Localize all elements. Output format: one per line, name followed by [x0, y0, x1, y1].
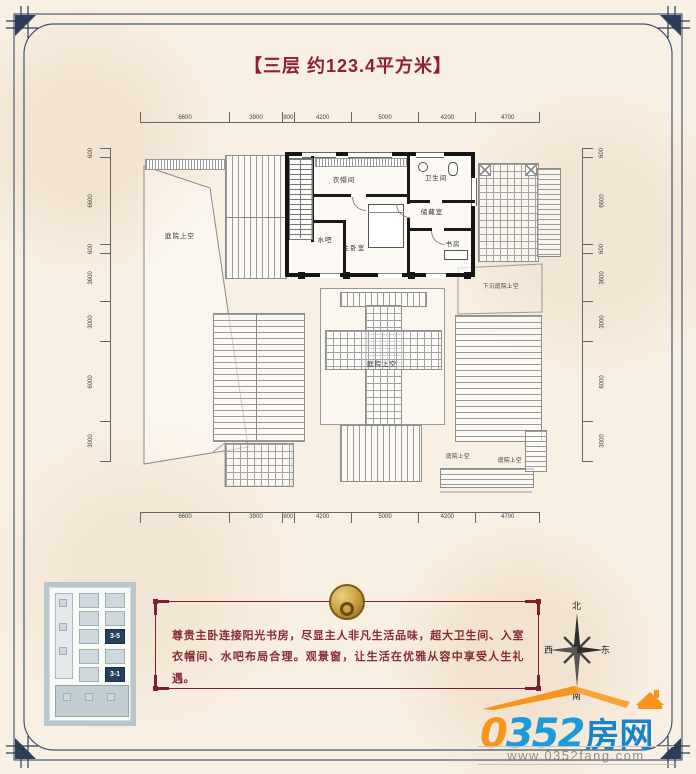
- dim-seg: 800: [282, 513, 294, 523]
- dim-value: 4200: [295, 514, 351, 520]
- dim-seg: 6600: [140, 112, 229, 122]
- description-box: 尊贵主卧连接阳光书房，尽显主人非凡生活品味，超大卫生间、入室衣帽间、水吧布局合理…: [155, 601, 539, 689]
- roof-bottom-center: [340, 425, 422, 482]
- desc-corner-ornament: [154, 675, 169, 690]
- wall-segment: [366, 194, 410, 197]
- dim-value: 800: [283, 115, 294, 121]
- dim-value: 6600: [141, 115, 229, 121]
- terrace-corner-mark: [525, 164, 537, 176]
- dim-value: 4200: [419, 514, 475, 520]
- site-logo: 0352房网 www.0352fang.com: [478, 684, 686, 764]
- wall-segment: [407, 218, 410, 277]
- stair-rail: [300, 158, 301, 238]
- dim-value: 4700: [476, 514, 539, 520]
- keyplan-unit: [79, 593, 99, 608]
- roof-lower-left: [213, 313, 305, 442]
- dim-value: 4200: [419, 115, 475, 121]
- dim-value: 600: [88, 244, 94, 254]
- roof-bottom-left-grid: [225, 443, 294, 487]
- roof-ridge-line: [225, 217, 285, 218]
- dim-seg: 600: [100, 148, 110, 157]
- window: [416, 152, 444, 158]
- wall-segment: [410, 228, 432, 231]
- dim-value: 3000: [88, 315, 94, 328]
- dim-value: 5000: [352, 115, 419, 121]
- dim-seg: 6600: [140, 513, 229, 523]
- keyplan-lower-block: [55, 685, 129, 717]
- desc-corner-ornament: [154, 600, 169, 615]
- compass-west-label: 西: [544, 645, 553, 655]
- dim-seg: 3900: [229, 112, 282, 122]
- room-label-study: 书房: [440, 238, 466, 248]
- dim-seg: 4200: [418, 112, 475, 122]
- keyplan-unit: [105, 593, 125, 608]
- steps-right-column: [525, 430, 547, 472]
- wall-segment: [311, 194, 351, 197]
- balcony-door-opening: [320, 273, 340, 278]
- keyplan-unit: [79, 649, 99, 664]
- dim-seg: 6000: [100, 341, 110, 420]
- courtyard-label: 庭院上空: [436, 452, 480, 460]
- dim-value: 3600: [599, 271, 605, 284]
- dim-value: 3000: [599, 315, 605, 328]
- dim-seg: 3600: [100, 253, 110, 301]
- dim-value: 6600: [88, 194, 94, 207]
- keyplan-unit-3-1: 3-1: [105, 667, 125, 682]
- dimension-line-top: 6600 3900 800 4200 5000 4200 4700: [140, 112, 540, 123]
- dim-seg: 3000: [583, 421, 593, 462]
- dim-seg: 4700: [475, 513, 540, 523]
- dim-value: 5000: [352, 514, 419, 520]
- page: 【三层 约123.4平方米】 6600 3900 800 4200 5000 4…: [0, 0, 696, 774]
- room-label-bath: 卫生间: [418, 172, 454, 182]
- keyplan-mark: [107, 693, 115, 701]
- courtyard-label: 庭院上空: [352, 358, 412, 368]
- keyplan-inset: 3-5 3-1: [44, 582, 136, 726]
- dim-value: 3600: [88, 271, 94, 284]
- wall-segment: [410, 200, 430, 203]
- column-post: [298, 272, 305, 279]
- balcony-door-opening: [378, 273, 402, 278]
- wall-segment: [407, 156, 410, 204]
- dim-value: 3900: [230, 514, 282, 520]
- dimension-line-right: 600 6600 600 3600 3000 6000 3000: [582, 148, 593, 462]
- keyplan-unit: [79, 629, 99, 644]
- dim-seg: 5000: [351, 112, 419, 122]
- dim-value: 4200: [295, 115, 351, 121]
- dim-value: 3000: [599, 435, 605, 448]
- keyplan-mark: [59, 647, 67, 655]
- keyplan-unit: [79, 667, 99, 682]
- room-label-closet: 衣帽间: [324, 174, 364, 184]
- dim-value: 600: [599, 244, 605, 254]
- dim-seg: 600: [583, 244, 593, 253]
- staircase: [289, 158, 313, 240]
- dim-seg: 800: [282, 112, 294, 122]
- dim-seg: 6600: [100, 157, 110, 244]
- terrace-steps: [537, 168, 561, 257]
- sink: [418, 162, 428, 172]
- column-post: [464, 272, 471, 279]
- terrace-grid: [478, 163, 539, 262]
- dim-seg: 4200: [418, 513, 475, 523]
- dim-value: 3900: [230, 115, 282, 121]
- dim-seg: 5000: [351, 513, 419, 523]
- keyplan-mark: [85, 693, 93, 701]
- sunken-courtyard-label: 下沉庭院上空: [462, 282, 540, 290]
- emblem-ring: [340, 602, 354, 616]
- dim-seg: 3600: [583, 253, 593, 301]
- dim-value: 600: [599, 148, 605, 158]
- dim-value: 800: [283, 514, 294, 520]
- keyplan-unit: [79, 611, 99, 626]
- wall-segment: [444, 228, 475, 231]
- dim-value: 3000: [88, 435, 94, 448]
- dim-seg: 6600: [583, 157, 593, 244]
- dim-value: 6000: [88, 375, 94, 388]
- dim-seg: 4200: [294, 513, 351, 523]
- desk: [444, 250, 468, 260]
- roof-hatch-strip: [145, 159, 225, 170]
- dim-seg: 3000: [100, 301, 110, 341]
- description-text: 尊贵主卧连接阳光书房，尽显主人非凡生活品味，超大卫生间、入室衣帽间、水吧布局合理…: [172, 626, 524, 690]
- logo-url: www.0352fang.com: [478, 746, 674, 765]
- courtyard-label: 庭院上空: [150, 230, 210, 240]
- keyplan-mark: [59, 599, 67, 607]
- dim-seg: 4700: [475, 112, 540, 122]
- dim-value: 600: [88, 148, 94, 158]
- dim-seg: 600: [100, 244, 110, 253]
- wall-segment: [311, 220, 343, 223]
- dimension-line-bottom: 6600 3900 800 4200 5000 4200 4700: [140, 512, 540, 523]
- dim-seg: 4200: [294, 112, 351, 122]
- floor-plan: 6600 3900 800 4200 5000 4200 4700 6600 3…: [96, 100, 600, 540]
- desc-corner-ornament: [525, 600, 540, 615]
- page-title: 【三层 约123.4平方米】: [0, 52, 696, 78]
- dim-value: 6600: [599, 194, 605, 207]
- dim-seg: 3000: [100, 421, 110, 462]
- dim-seg: 3900: [229, 513, 282, 523]
- room-label-waterbar: 水吧: [312, 234, 338, 244]
- keyplan-mark: [63, 693, 71, 701]
- dim-value: 6000: [599, 375, 605, 388]
- logo-roof-icon: [478, 684, 678, 710]
- keyplan-unit: [105, 649, 125, 664]
- terrace-corner-mark: [479, 164, 491, 176]
- dim-value: 6600: [141, 514, 229, 520]
- compass-north-label: 北: [572, 601, 581, 611]
- room-label-master: 主卧室: [334, 242, 374, 252]
- balcony-door-opening: [426, 273, 446, 278]
- dimension-line-left: 600 6600 600 3600 3000 6000 3000: [100, 148, 111, 462]
- compass-east-label: 东: [601, 644, 610, 655]
- door-knocker-emblem-icon: [329, 584, 365, 620]
- roof-split-line: [256, 313, 257, 440]
- wall-segment: [442, 200, 475, 203]
- dim-seg: 6000: [583, 341, 593, 420]
- keyplan-mark: [59, 623, 67, 631]
- room-label-storage: 储藏室: [414, 206, 450, 216]
- dim-seg: 600: [583, 148, 593, 157]
- dim-seg: 3000: [583, 301, 593, 341]
- wardrobe-fittings: [315, 158, 407, 167]
- roof-bottom-right-strip: [440, 468, 534, 488]
- keyplan-unit: [105, 611, 125, 626]
- roof-lower-right: [455, 315, 542, 442]
- dim-value: 4700: [476, 115, 539, 121]
- courtyard-label: 庭院上空: [488, 456, 532, 464]
- keyplan-unit-3-5: 3-5: [105, 629, 125, 644]
